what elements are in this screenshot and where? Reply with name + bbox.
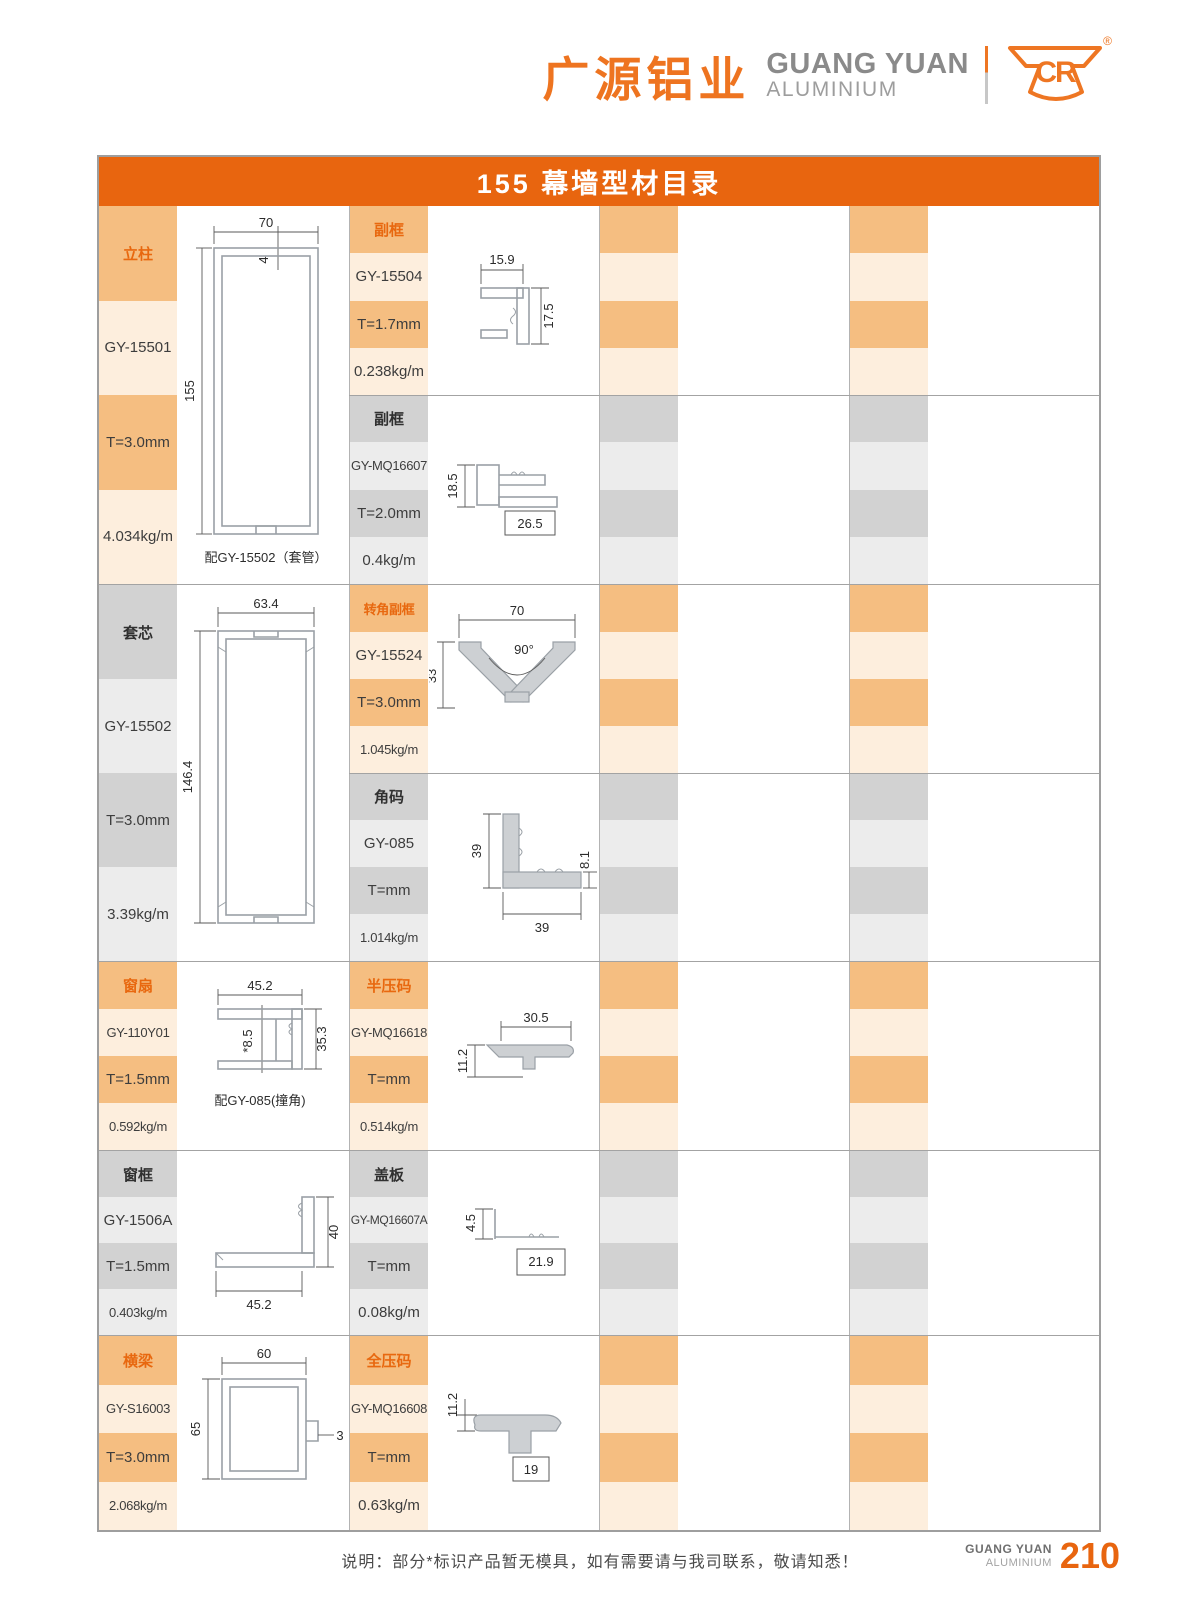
- stripe: [600, 679, 678, 726]
- group-divider: [349, 395, 1099, 396]
- spec-strip: 全压码 GY-MQ16608 T=mm 0.63kg/m: [350, 1336, 428, 1530]
- stripe: [600, 962, 678, 1009]
- drawing-area: 30.5 11.2: [428, 962, 599, 1150]
- drawing-caption: 配GY-085(撞角): [214, 1093, 305, 1108]
- profile-name: 窗扇: [99, 962, 177, 1009]
- band-lizhu: 立柱 GY-15501 T=3.0mm 4.034kg/m 70 4: [99, 206, 1099, 584]
- unit-lizhu: 立柱 GY-15501 T=3.0mm 4.034kg/m 70 4: [99, 206, 349, 584]
- profile-weight: 0.08kg/m: [350, 1289, 428, 1335]
- profile-code: GY-MQ16607: [350, 442, 428, 489]
- unit-empty: [599, 1336, 849, 1530]
- stripe: [850, 1151, 928, 1197]
- dim-height: 11.2: [445, 1393, 460, 1417]
- stripe: [850, 1103, 928, 1150]
- drawing-area-empty: [678, 1336, 849, 1530]
- stripe: [600, 1289, 678, 1335]
- dim-height: 17.5: [541, 303, 556, 328]
- unit-chuangshan: 窗扇 GY-110Y01 T=1.5mm 0.592kg/m 45.2 *8.5: [99, 962, 349, 1150]
- profile-code: GY-15524: [350, 632, 428, 679]
- drawing-area: 63.4 146.4: [177, 585, 349, 961]
- drawing-area-empty: [678, 962, 849, 1150]
- taoxin-profile-drawing: 63.4 146.4: [178, 587, 348, 959]
- profile-weight: 2.068kg/m: [99, 1482, 177, 1531]
- profile-weight: 1.014kg/m: [350, 914, 428, 961]
- unit-quanyama: 全压码 GY-MQ16608 T=mm 0.63kg/m 11.2 19: [349, 1336, 599, 1530]
- dim-width: 21.9: [528, 1254, 553, 1269]
- profile-weight: 0.403kg/m: [99, 1289, 177, 1335]
- dim-width: 45.2: [247, 978, 272, 993]
- profile-name: 套芯: [99, 585, 177, 679]
- stripe: [600, 1009, 678, 1056]
- stripe: [600, 348, 678, 395]
- drawing-area: 11.2 19: [428, 1336, 599, 1530]
- band-taoxin: 套芯 GY-15502 T=3.0mm 3.39kg/m 63.4 146.4: [99, 584, 1099, 961]
- drawing-area-empty: [928, 962, 1099, 1150]
- stripe: [600, 1433, 678, 1482]
- profile-thickness: T=mm: [350, 1056, 428, 1103]
- chuangkuang-profile-drawing: 40 45.2: [178, 1153, 348, 1333]
- empty-strip: [850, 1336, 928, 1530]
- profile-thickness: T=mm: [350, 1243, 428, 1289]
- zhuanjiao-profile-drawing: 70 33 90°: [429, 588, 599, 770]
- profile-code: GY-MQ16618: [350, 1009, 428, 1056]
- quanyama-profile-drawing: 11.2 19: [429, 1339, 599, 1527]
- stripe: [600, 867, 678, 914]
- footer-brand-en: GUANG YUAN: [965, 1543, 1052, 1556]
- profile-code: GY-MQ16607A: [350, 1197, 428, 1243]
- dim-height: 33: [429, 669, 439, 683]
- stripe: [850, 490, 928, 537]
- stripe: [600, 726, 678, 773]
- unit-chuangkuang: 窗框 GY-1506A T=1.5mm 0.403kg/m 40 45.2: [99, 1151, 349, 1335]
- dim-depth: 8.1: [577, 851, 592, 869]
- profile-weight: 4.034kg/m: [99, 490, 177, 585]
- dim-height: 11.2: [455, 1049, 470, 1073]
- drawing-area-empty: [678, 1151, 849, 1335]
- dim-height: 39: [469, 844, 484, 858]
- stripe: [850, 679, 928, 726]
- dim-tab: 3: [336, 1428, 343, 1443]
- brand-name-english: GUANG YUAN ALUMINIUM: [766, 49, 969, 101]
- stripe: [600, 442, 678, 489]
- stripe: [600, 914, 678, 961]
- footer-brand: GUANG YUAN ALUMINIUM: [965, 1543, 1052, 1568]
- drawing-area: 4.5 21.9: [428, 1151, 599, 1335]
- drawing-bottom: 18.5 26.5: [428, 395, 599, 584]
- unit-empty: [849, 962, 1099, 1150]
- drawing-area: 70 4 155 配GY-15502（套管）: [177, 206, 349, 584]
- dim-height: 4.5: [463, 1214, 478, 1232]
- profile-name: 半压码: [350, 962, 428, 1009]
- profile-weight: 1.045kg/m: [350, 726, 428, 773]
- stripe: [850, 1289, 928, 1335]
- band-chuangkuang: 窗框 GY-1506A T=1.5mm 0.403kg/m 40 45.2: [99, 1150, 1099, 1335]
- dim-width: 70: [259, 215, 273, 230]
- profile-code: GY-1506A: [99, 1197, 177, 1243]
- hengliang-profile-drawing: 60 65 3: [178, 1339, 348, 1527]
- stripe: [600, 253, 678, 300]
- dim-height: 155: [182, 380, 197, 402]
- stripe: [850, 1336, 928, 1385]
- registered-trademark-icon: ®: [1103, 34, 1112, 48]
- dim-width: 45.2: [246, 1297, 271, 1312]
- stripe: [600, 490, 678, 537]
- profile-thickness: T=1.5mm: [99, 1243, 177, 1289]
- profile-thickness: T=3.0mm: [99, 773, 177, 867]
- drawing-top: 70 33 90°: [428, 585, 599, 773]
- profile-thickness: T=3.0mm: [99, 395, 177, 490]
- profile-code: GY-MQ16608: [350, 1385, 428, 1434]
- stripe: [850, 1056, 928, 1103]
- stripe: [600, 1482, 678, 1531]
- stripe: [850, 395, 928, 442]
- dim-inner: *8.5: [240, 1029, 255, 1052]
- dim-width: 19: [523, 1462, 537, 1477]
- profile-name: 转角副框: [350, 585, 428, 632]
- stripe: [600, 632, 678, 679]
- profile-code: GY-15501: [99, 301, 177, 396]
- profile-weight: 0.238kg/m: [350, 348, 428, 395]
- drawing-area: 40 45.2: [177, 1151, 349, 1335]
- profile-code: GY-S16003: [99, 1385, 177, 1434]
- stripe: [850, 253, 928, 300]
- gaiban-profile-drawing: 4.5 21.9: [429, 1153, 599, 1333]
- brand-divider: [985, 46, 988, 104]
- band-hengliang: 横梁 GY-S16003 T=3.0mm 2.068kg/m 60 65: [99, 1335, 1099, 1530]
- profile-weight: 3.39kg/m: [99, 867, 177, 961]
- dim-width: 26.5: [517, 516, 542, 531]
- stripe: [850, 820, 928, 867]
- unit-taoxin: 套芯 GY-15502 T=3.0mm 3.39kg/m 63.4 146.4: [99, 585, 349, 961]
- drawing-area-empty: [928, 1336, 1099, 1530]
- stripe: [850, 632, 928, 679]
- profile-code: GY-15504: [350, 253, 428, 300]
- banyama-profile-drawing: 30.5 11.2: [429, 965, 599, 1147]
- brand-sub-line: ALUMINIUM: [766, 79, 969, 101]
- catalog-title: 155 幕墙型材目录: [477, 162, 722, 201]
- drawing-top: 15.9 17.5: [428, 206, 599, 395]
- profile-thickness: T=1.5mm: [99, 1056, 177, 1103]
- profile-weight: 0.4kg/m: [350, 537, 428, 584]
- profile-code: GY-085: [350, 820, 428, 867]
- profile-name: 窗框: [99, 1151, 177, 1197]
- drawing-bottom: 39 39 8.1: [428, 773, 599, 961]
- unit-empty: [849, 1336, 1099, 1530]
- spec-strip: 套芯 GY-15502 T=3.0mm 3.39kg/m: [99, 585, 177, 961]
- dim-width: 63.4: [253, 596, 278, 611]
- drawing-caption: 配GY-15502（套管）: [204, 550, 327, 565]
- cr-badge-icon: CR: [1004, 38, 1108, 112]
- profile-code: GY-110Y01: [99, 1009, 177, 1056]
- logo-cr-text: CR: [1035, 56, 1077, 89]
- stripe: [600, 1336, 678, 1385]
- fukuang1-profile-drawing: 15.9 17.5: [429, 210, 599, 392]
- lizhu-profile-drawing: 70 4 155 配GY-15502（套管）: [178, 210, 348, 580]
- profile-thickness: T=2.0mm: [350, 490, 428, 537]
- drawing-area: 45.2 *8.5 35.3 配GY-085(撞角): [177, 962, 349, 1150]
- profile-name: 角码: [350, 773, 428, 820]
- profile-thickness: T=1.7mm: [350, 301, 428, 348]
- stripe: [850, 585, 928, 632]
- dim-width: 30.5: [523, 1010, 548, 1025]
- spec-strip: 窗扇 GY-110Y01 T=1.5mm 0.592kg/m: [99, 962, 177, 1150]
- stripe: [600, 395, 678, 442]
- stripe: [850, 1009, 928, 1056]
- stripe: [850, 348, 928, 395]
- unit-gaiban: 盖板 GY-MQ16607A T=mm 0.08kg/m 4.5 21.9: [349, 1151, 599, 1335]
- stripe: [850, 1433, 928, 1482]
- empty-strip: [850, 962, 928, 1150]
- fukuang2-profile-drawing: 18.5 26.5: [429, 399, 599, 581]
- stripe: [600, 301, 678, 348]
- stripe: [600, 820, 678, 867]
- stripe: [850, 726, 928, 773]
- unit-hengliang: 横梁 GY-S16003 T=3.0mm 2.068kg/m 60 65: [99, 1336, 349, 1530]
- profile-name: 盖板: [350, 1151, 428, 1197]
- profile-name: 副框: [350, 395, 428, 442]
- stripe: [600, 537, 678, 584]
- stripe: [850, 773, 928, 820]
- profile-name: 全压码: [350, 1336, 428, 1385]
- unit-empty: [849, 1151, 1099, 1335]
- stripe: [850, 1482, 928, 1531]
- stripe: [850, 867, 928, 914]
- dim-angle: 90°: [514, 642, 534, 657]
- empty-strip: [600, 1151, 678, 1335]
- profile-thickness: T=mm: [350, 867, 428, 914]
- stripe: [850, 301, 928, 348]
- stripe: [850, 914, 928, 961]
- profile-thickness: T=3.0mm: [350, 679, 428, 726]
- dim-height: 18.5: [445, 473, 460, 498]
- brand-name-chinese: 广源铝业: [542, 41, 750, 110]
- profile-code: GY-15502: [99, 679, 177, 773]
- drawing-area: 60 65 3: [177, 1336, 349, 1530]
- brand-en-line: GUANG YUAN: [766, 49, 969, 79]
- profile-thickness: T=mm: [350, 1433, 428, 1482]
- stripe: [600, 1103, 678, 1150]
- stripe: [600, 206, 678, 253]
- company-logo-icon: CR ®: [1004, 38, 1108, 112]
- empty-strip: [600, 1336, 678, 1530]
- group-divider: [349, 773, 1099, 774]
- spec-strip: 立柱 GY-15501 T=3.0mm 4.034kg/m: [99, 206, 177, 584]
- spec-strip: 横梁 GY-S16003 T=3.0mm 2.068kg/m: [99, 1336, 177, 1530]
- profile-name: 副框: [350, 206, 428, 253]
- profile-weight: 0.63kg/m: [350, 1482, 428, 1531]
- page-header: 广源铝业 GUANG YUAN ALUMINIUM CR ®: [0, 0, 1200, 150]
- empty-strip: [600, 962, 678, 1150]
- profile-thickness: T=3.0mm: [99, 1433, 177, 1482]
- footer-brand-sub: ALUMINIUM: [986, 1557, 1052, 1569]
- stripe: [850, 962, 928, 1009]
- spec-strip: 盖板 GY-MQ16607A T=mm 0.08kg/m: [350, 1151, 428, 1335]
- spec-strip: 半压码 GY-MQ16618 T=mm 0.514kg/m: [350, 962, 428, 1150]
- stripe: [600, 773, 678, 820]
- profile-weight: 0.592kg/m: [99, 1103, 177, 1150]
- spec-strip: 窗框 GY-1506A T=1.5mm 0.403kg/m: [99, 1151, 177, 1335]
- empty-strip: [850, 1151, 928, 1335]
- stripe: [600, 1151, 678, 1197]
- catalog-table: 155 幕墙型材目录 立柱 GY-15501 T=3.0mm 4.034kg/m…: [97, 155, 1101, 1532]
- stripe: [600, 1056, 678, 1103]
- footer-page-block: GUANG YUAN ALUMINIUM 210: [965, 1538, 1120, 1574]
- stripe: [600, 1243, 678, 1289]
- stripe: [850, 1197, 928, 1243]
- profile-name: 立柱: [99, 206, 177, 301]
- dim-width: 39: [534, 920, 548, 935]
- stripe: [850, 1243, 928, 1289]
- jiaoma-profile-drawing: 39 39 8.1: [429, 776, 599, 958]
- profile-weight: 0.514kg/m: [350, 1103, 428, 1150]
- dim-height: 40: [326, 1225, 341, 1239]
- dim-height: 65: [188, 1422, 203, 1436]
- dim-height: 35.3: [314, 1026, 329, 1051]
- stripe: [850, 1385, 928, 1434]
- chuangshan-profile-drawing: 45.2 *8.5 35.3 配GY-085(撞角): [178, 965, 348, 1147]
- stripe: [600, 1197, 678, 1243]
- unit-banyama: 半压码 GY-MQ16618 T=mm 0.514kg/m 30.5 11.2: [349, 962, 599, 1150]
- dim-wall: 4: [256, 256, 271, 263]
- stripe: [600, 1385, 678, 1434]
- catalog-page: 广源铝业 GUANG YUAN ALUMINIUM CR ® 155 幕墙型材目…: [0, 0, 1200, 1617]
- profile-name: 横梁: [99, 1336, 177, 1385]
- stripe: [850, 442, 928, 489]
- stripe: [850, 537, 928, 584]
- unit-empty: [599, 962, 849, 1150]
- stripe: [850, 206, 928, 253]
- dim-width: 70: [509, 603, 523, 618]
- unit-empty: [599, 1151, 849, 1335]
- stripe: [600, 585, 678, 632]
- band-chuangshan: 窗扇 GY-110Y01 T=1.5mm 0.592kg/m 45.2 *8.5: [99, 961, 1099, 1150]
- catalog-title-bar: 155 幕墙型材目录: [99, 157, 1099, 206]
- page-number: 210: [1060, 1538, 1120, 1574]
- dim-height: 146.4: [180, 761, 195, 794]
- drawing-area-empty: [928, 1151, 1099, 1335]
- dim-width: 60: [257, 1346, 271, 1361]
- dim-width: 15.9: [489, 252, 514, 267]
